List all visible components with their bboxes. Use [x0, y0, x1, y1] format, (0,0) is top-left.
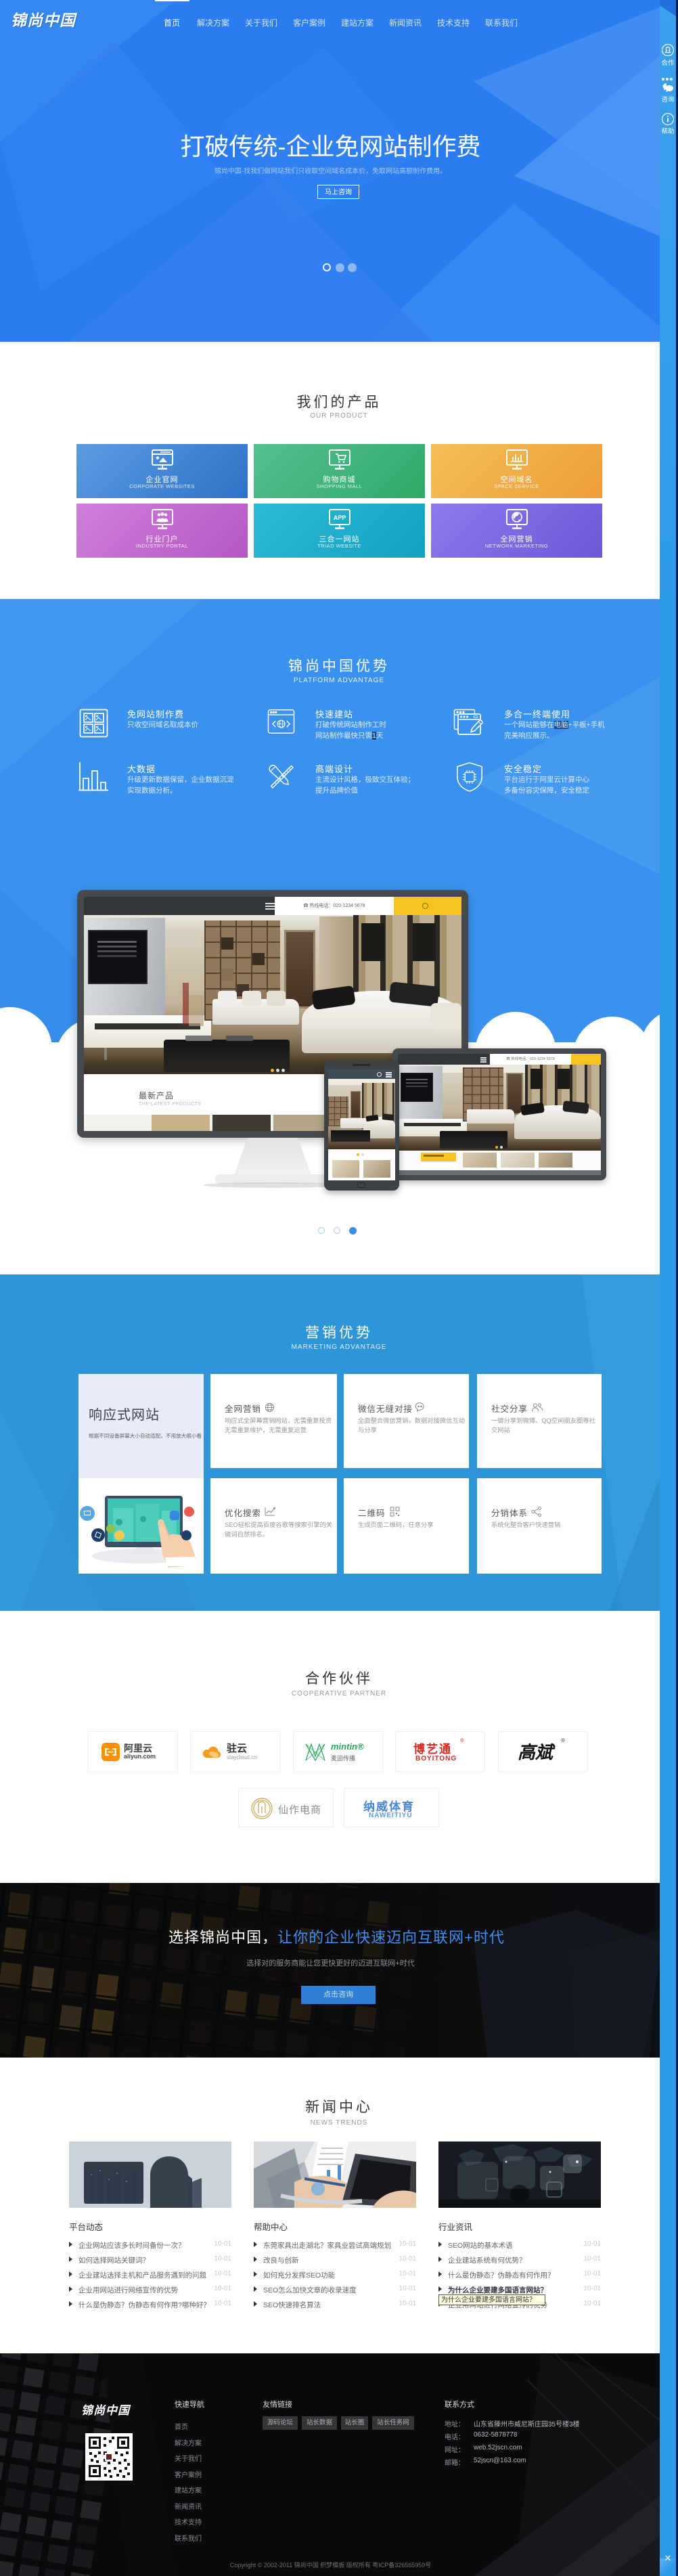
svg-text:APP: APP — [333, 514, 346, 521]
